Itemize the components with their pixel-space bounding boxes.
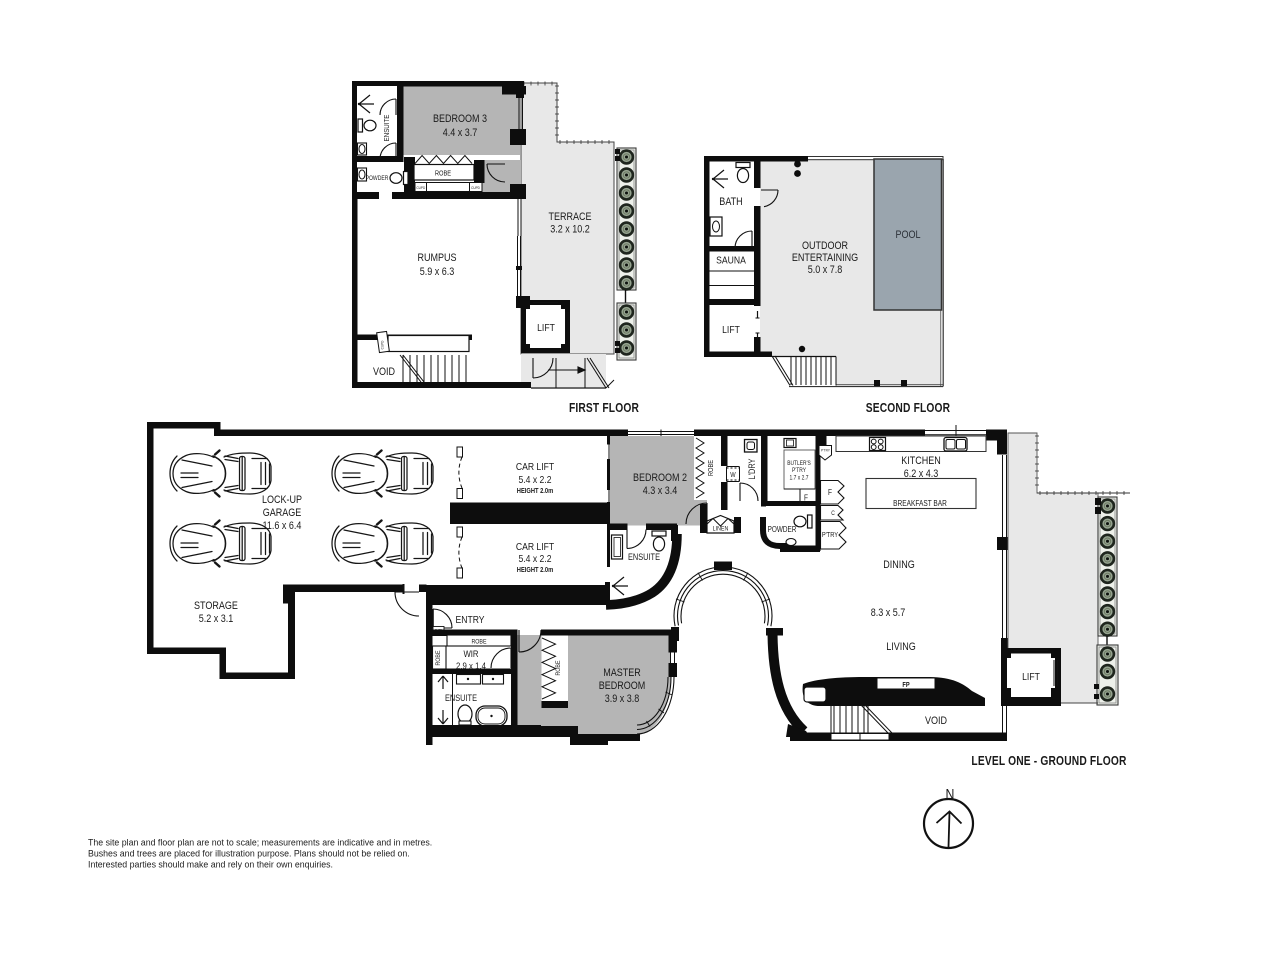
svg-text:ROBE: ROBE [471, 639, 487, 646]
svg-text:P'TRY: P'TRY [822, 532, 839, 539]
svg-text:5.9 x 6.3: 5.9 x 6.3 [420, 266, 455, 278]
svg-text:1.7 x 2.7: 1.7 x 2.7 [790, 476, 809, 482]
svg-text:LIVING: LIVING [886, 641, 916, 653]
svg-text:LIFT: LIFT [722, 324, 740, 336]
svg-text:ROBE: ROBE [555, 660, 562, 676]
svg-text:HEIGHT 2.0m: HEIGHT 2.0m [517, 488, 553, 495]
svg-text:5.4 x 2.2: 5.4 x 2.2 [519, 474, 552, 486]
svg-text:CAR LIFT: CAR LIFT [516, 461, 555, 473]
svg-text:4.4 x 3.7: 4.4 x 3.7 [443, 127, 478, 139]
svg-text:WIR: WIR [463, 649, 478, 660]
svg-text:F: F [828, 488, 832, 497]
svg-text:BEDROOM 3: BEDROOM 3 [433, 113, 487, 125]
svg-text:VOID: VOID [373, 366, 395, 378]
svg-text:N: N [946, 786, 955, 803]
svg-text:CUPD: CUPD [471, 186, 480, 190]
svg-text:5.0 x 7.8: 5.0 x 7.8 [808, 264, 843, 276]
svg-text:LIFT: LIFT [1022, 671, 1040, 683]
svg-text:3.2 x 10.2: 3.2 x 10.2 [550, 224, 590, 236]
svg-text:5.4 x 2.2: 5.4 x 2.2 [519, 553, 552, 565]
svg-text:ENSUITE: ENSUITE [628, 552, 660, 562]
svg-text:BREAKFAST BAR: BREAKFAST BAR [893, 499, 947, 508]
svg-text:DINING: DINING [883, 559, 915, 571]
svg-text:HEIGHT 2.0m: HEIGHT 2.0m [517, 567, 553, 574]
svg-text:P'TRY: P'TRY [792, 468, 806, 474]
svg-text:SAUNA: SAUNA [716, 255, 746, 267]
svg-text:BATH: BATH [719, 196, 742, 208]
svg-text:ROBE: ROBE [708, 460, 715, 477]
svg-text:LIFT: LIFT [537, 322, 555, 334]
svg-text:STORAGE: STORAGE [194, 600, 238, 612]
svg-text:CUPD: CUPD [381, 340, 385, 349]
svg-text:Interested parties should make: Interested parties should make and rely … [88, 860, 333, 870]
svg-text:ENTERTAINING: ENTERTAINING [792, 252, 858, 264]
svg-text:ROBE: ROBE [435, 171, 452, 178]
svg-text:W: W [730, 472, 736, 479]
svg-text:LOCK-UP: LOCK-UP [262, 494, 302, 506]
svg-text:POOL: POOL [895, 229, 920, 241]
svg-text:F: F [804, 494, 808, 503]
svg-text:GARAGE: GARAGE [263, 507, 302, 519]
svg-text:ENTRY: ENTRY [456, 614, 485, 626]
svg-text:BEDROOM: BEDROOM [599, 680, 646, 692]
svg-text:C: C [831, 511, 835, 517]
svg-text:POWDER: POWDER [366, 175, 389, 182]
svg-text:5.2 x 3.1: 5.2 x 3.1 [199, 613, 234, 625]
svg-text:CUPD: CUPD [416, 186, 425, 190]
svg-text:FP: FP [902, 682, 910, 689]
svg-text:MASTER: MASTER [603, 667, 641, 679]
svg-text:LINEN: LINEN [713, 526, 729, 533]
svg-text:FIRST FLOOR: FIRST FLOOR [569, 401, 639, 415]
svg-text:4.3 x 3.4: 4.3 x 3.4 [643, 485, 678, 497]
svg-text:BUTLER'S: BUTLER'S [787, 461, 811, 467]
svg-text:SECOND FLOOR: SECOND FLOOR [866, 401, 951, 415]
svg-text:VOID: VOID [925, 715, 947, 727]
svg-text:L'DRY: L'DRY [747, 459, 757, 480]
svg-text:CAR LIFT: CAR LIFT [516, 541, 555, 553]
svg-text:ROBE: ROBE [435, 650, 442, 666]
svg-text:LEVEL ONE - GROUND FLOOR: LEVEL ONE - GROUND FLOOR [971, 754, 1126, 768]
svg-text:8.3 x 5.7: 8.3 x 5.7 [871, 607, 906, 619]
svg-text:POWDER: POWDER [768, 525, 797, 534]
svg-text:P'TRY: P'TRY [821, 449, 830, 453]
svg-text:BEDROOM 2: BEDROOM 2 [633, 472, 687, 484]
svg-text:OUTDOOR: OUTDOOR [802, 240, 848, 252]
svg-text:RUMPUS: RUMPUS [417, 252, 456, 264]
svg-text:The site plan and floor plan a: The site plan and floor plan are not to … [88, 838, 432, 848]
svg-text:11.6 x 6.4: 11.6 x 6.4 [263, 520, 302, 532]
svg-text:3.9 x 3.8: 3.9 x 3.8 [605, 693, 640, 705]
svg-text:ENSUITE: ENSUITE [445, 693, 477, 703]
svg-text:TERRACE: TERRACE [548, 211, 591, 223]
svg-text:Bushes and trees are placed fo: Bushes and trees are placed for illustra… [88, 849, 410, 859]
svg-text:KITCHEN: KITCHEN [901, 455, 941, 467]
svg-text:ENSUITE: ENSUITE [382, 115, 391, 142]
